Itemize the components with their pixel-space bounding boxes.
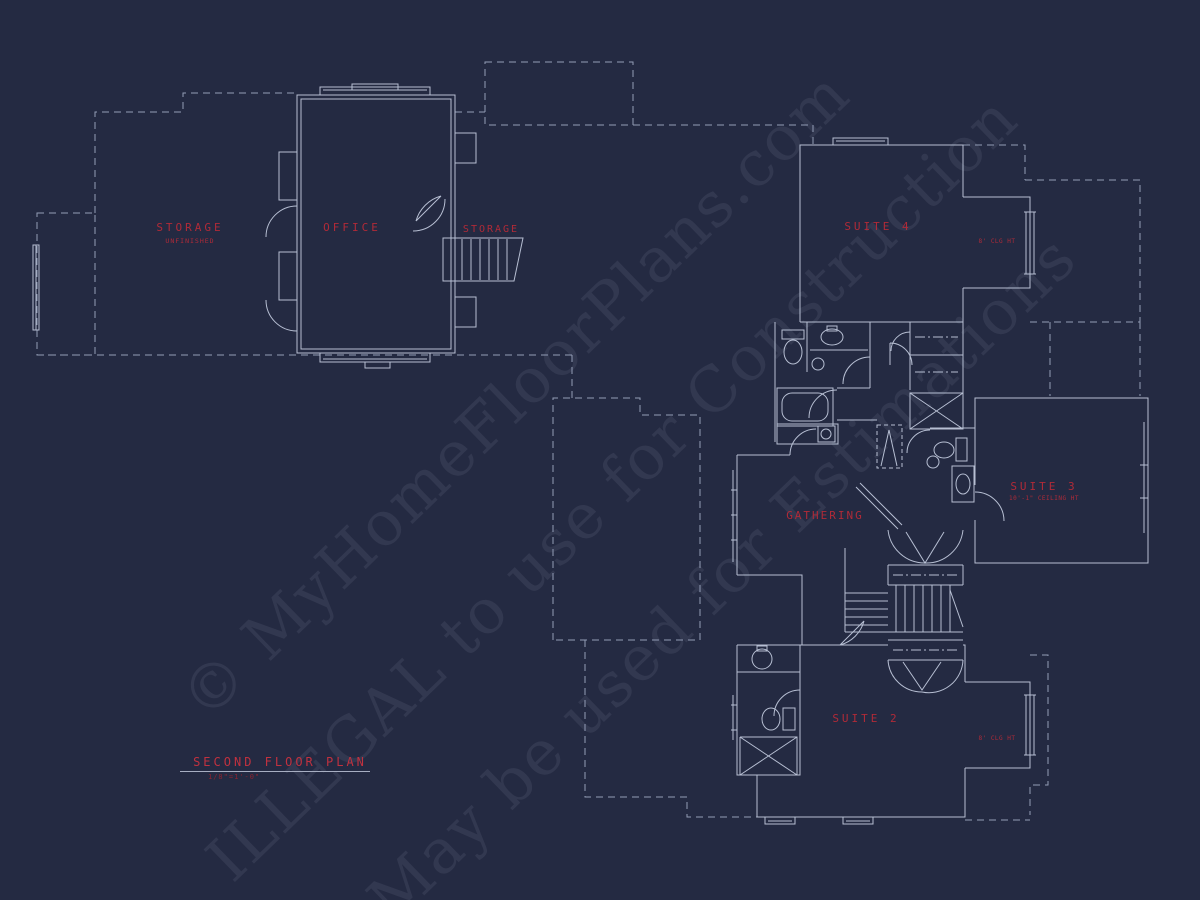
- toilet-fixture-bath4: [782, 330, 804, 364]
- gathering-walls: [737, 455, 802, 645]
- room-labels: STORAGEUNFINISHEDOFFICESTORAGESUITE 48' …: [156, 220, 1079, 742]
- dashed-right-roof-box: [1025, 180, 1140, 322]
- dashed-right-lower: [1030, 655, 1048, 815]
- dashed-suite4-right: [963, 145, 1025, 180]
- suite2-walls: [757, 645, 965, 817]
- room-label-storage-unfinished: STORAGE: [156, 221, 223, 234]
- office-door-arc-upper: [266, 206, 297, 237]
- title-block: SECOND FLOOR PLAN 1/8"=1'-0": [180, 755, 380, 781]
- room-label-suite-2-clg: 8' CLG HT: [978, 735, 1015, 742]
- room-label-suite-4: SUITE 4: [844, 220, 911, 233]
- title-underline: [180, 771, 370, 772]
- toilet-fixture-wc: [927, 438, 967, 468]
- room-label-suite-4-clg: 8' CLG HT: [978, 238, 1015, 245]
- left-building: [33, 84, 523, 368]
- room-label-storage-unfinished-sub: UNFINISHED: [165, 237, 214, 245]
- suite2-bath-window: [731, 695, 737, 740]
- window-bar-bottom: [365, 362, 390, 368]
- attic-stairs-treads: [462, 239, 507, 280]
- right-building: [731, 138, 1148, 824]
- suite2-double-door: [888, 660, 963, 693]
- office-door-arc-lower: [266, 300, 297, 331]
- room-label-suite-3-clg: 10'-1" CEILING HT: [1009, 495, 1079, 502]
- plan-scale: 1/8"=1'-0": [180, 773, 380, 781]
- bath-door-arc: [843, 357, 870, 384]
- gathering-window: [731, 470, 737, 562]
- dashed-top-link-right: [633, 125, 813, 145]
- sink-fixture-bath2: [752, 646, 772, 669]
- stair-treads-lower: [896, 585, 963, 632]
- dashed-top-box: [485, 62, 633, 125]
- room-label-office: OFFICE: [323, 221, 381, 234]
- suite4-top-window: [833, 138, 888, 145]
- stair-double-door: [888, 530, 963, 563]
- suite4-walls: [800, 145, 963, 322]
- shower-x-box: [740, 737, 797, 775]
- floor-plan-sheet: © MyHomeFloorPlans.com ILLEGAL to use fo…: [0, 0, 1200, 900]
- toilet-fixture-bath2: [762, 708, 795, 730]
- dashed-storage-top: [95, 93, 297, 213]
- office-bay-top: [320, 87, 430, 95]
- vanity-fixture-bath4: [777, 424, 838, 444]
- vanity-fixture-wc: [952, 466, 974, 502]
- office-bay-bottom: [320, 353, 430, 362]
- sink-fixture-bath4: [812, 326, 843, 370]
- suite3-door-arc: [975, 492, 1004, 521]
- closet-door-arc: [891, 332, 910, 351]
- room-label-suite-2: SUITE 2: [832, 712, 899, 725]
- gathering-door-arc: [790, 429, 816, 455]
- suite2-bottom-windows: [765, 817, 873, 824]
- room-label-suite-3: SUITE 3: [1010, 480, 1077, 493]
- dashed-center-region: [553, 398, 700, 640]
- dashed-center-bottom: [585, 640, 757, 817]
- office-left-notches: [279, 152, 297, 300]
- tub-fixture: [777, 388, 833, 426]
- hall-suite4-door: [890, 343, 912, 365]
- linen-closet-x: [910, 393, 963, 429]
- dash-dot-lines: [893, 337, 958, 650]
- attic-access-frame: [877, 425, 902, 468]
- room-label-gathering: GATHERING: [786, 509, 864, 522]
- suite3-window: [1140, 422, 1148, 533]
- fixtures: [752, 326, 974, 730]
- room-label-storage-stairs: STORAGE: [463, 224, 519, 235]
- hall-chamfer-wall: [856, 483, 902, 529]
- wc-door-arc: [907, 430, 930, 453]
- dashed-box-left: [37, 213, 95, 355]
- office-door-leaf: [416, 196, 441, 221]
- plan-title: SECOND FLOOR PLAN: [180, 755, 380, 769]
- suite2-bumpout: [965, 682, 1030, 768]
- window-far-left: [33, 245, 39, 330]
- dashed-right-mid: [1050, 322, 1140, 396]
